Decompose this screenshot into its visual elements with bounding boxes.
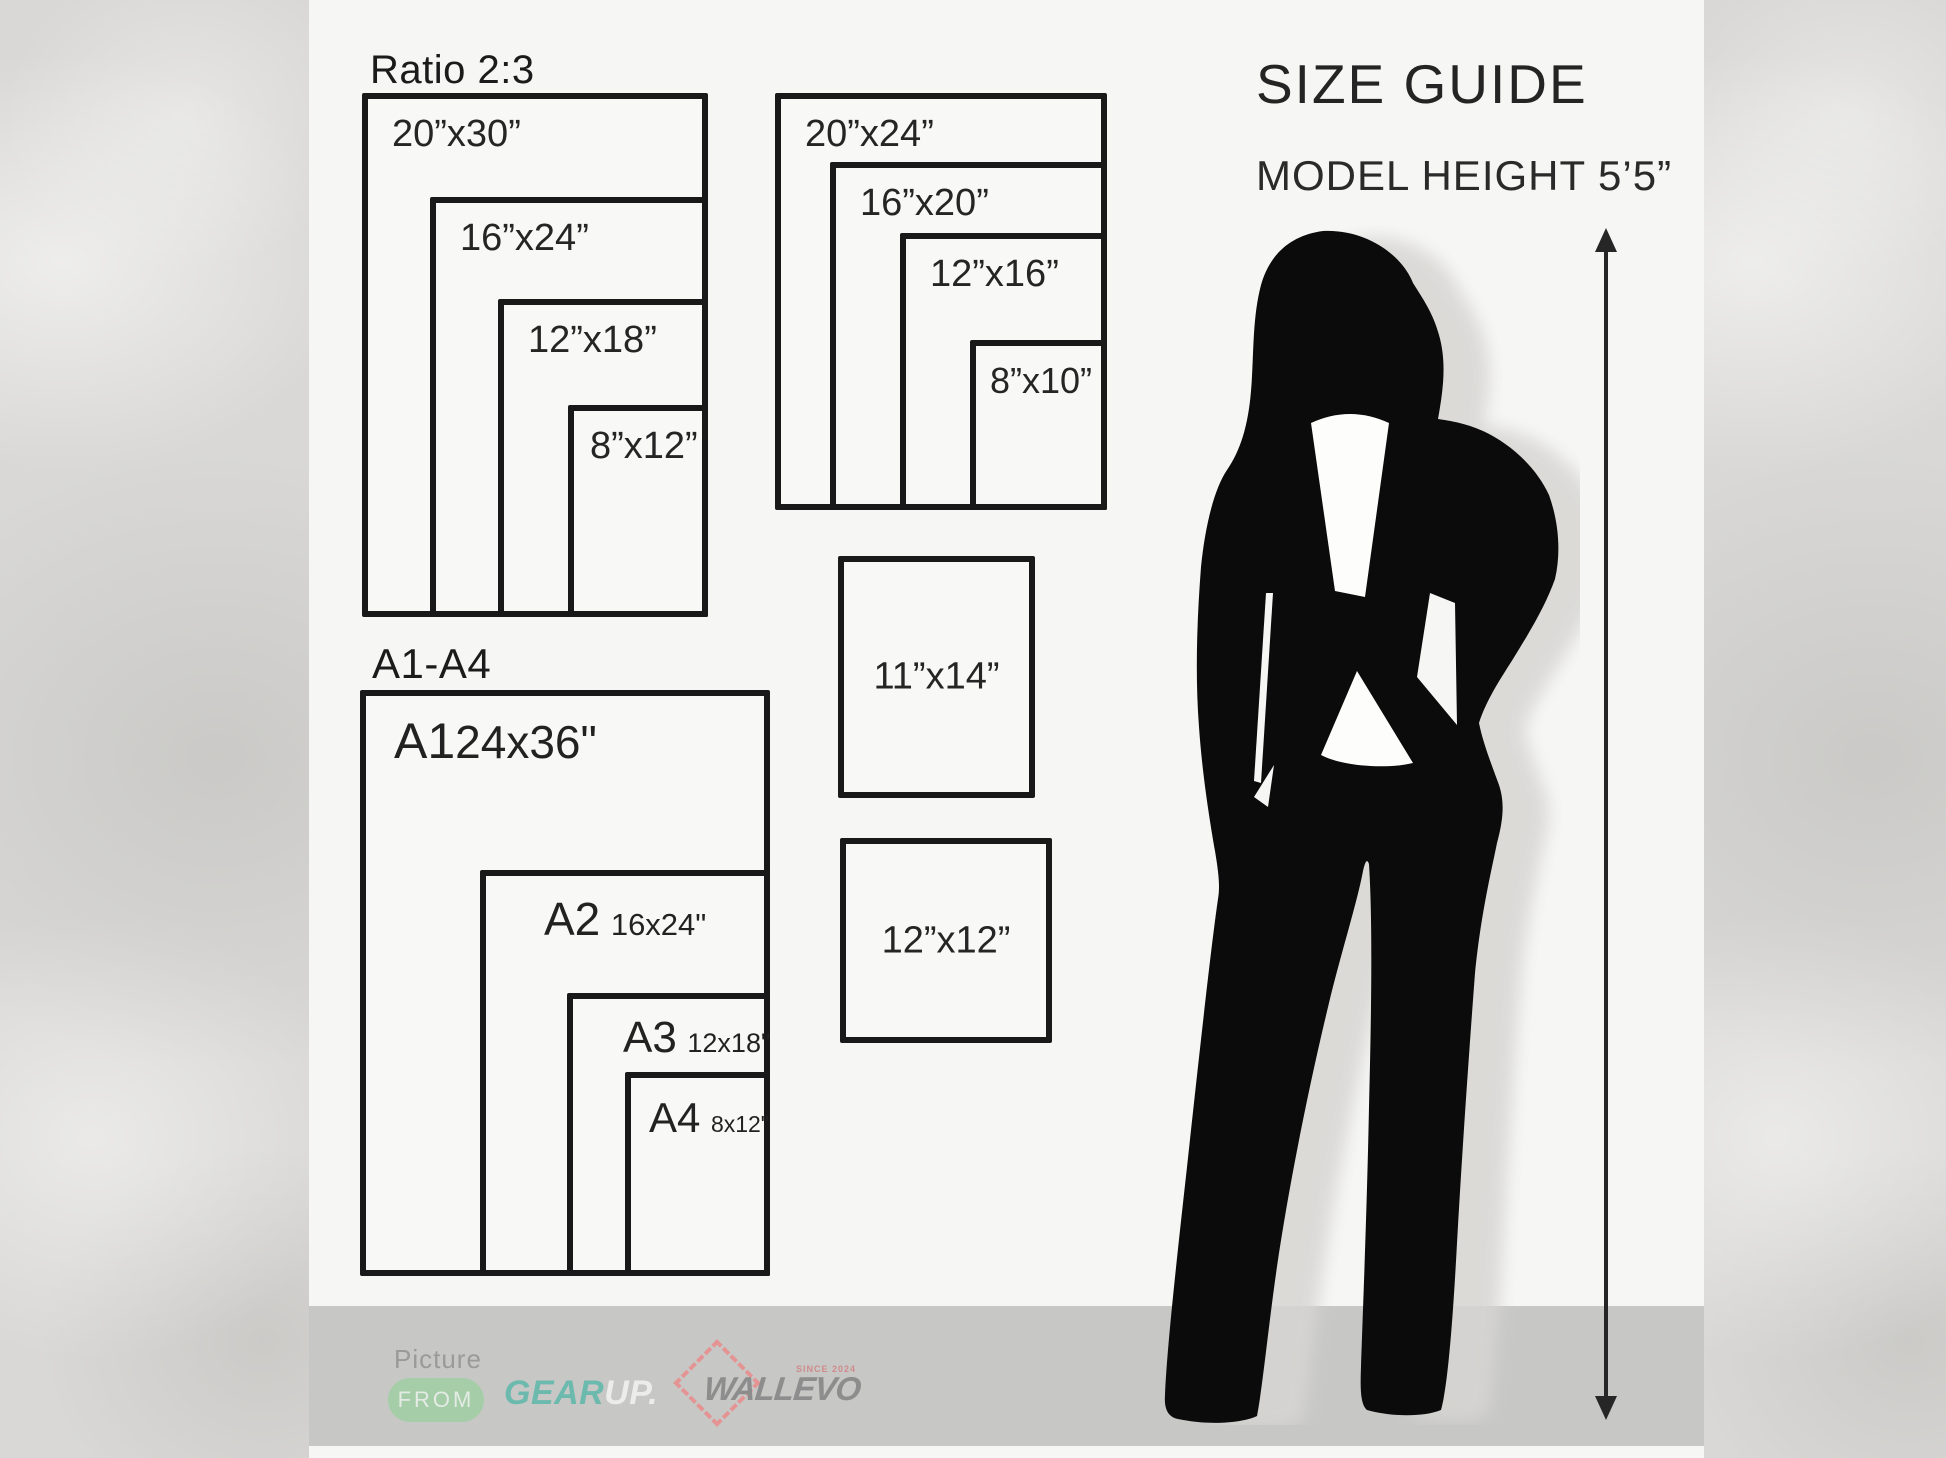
size-label: 16”x24”	[460, 217, 589, 260]
gearup-logo: GEARUP.	[504, 1374, 658, 1413]
a-size-code: A2	[544, 893, 600, 945]
size-guide-poster: Ratio 2:3 20”x30” 16”x24” 12”x18” 8”x12”…	[0, 0, 1946, 1458]
a-size-dim: 12x18"	[687, 1028, 770, 1058]
model-height-label: MODEL HEIGHT 5’5”	[1256, 152, 1672, 200]
arrow-down-icon	[1595, 1396, 1617, 1420]
height-arrow-shaft	[1604, 242, 1608, 1406]
size-box-a4: A4 8x12"	[625, 1072, 770, 1276]
picture-label: Picture	[394, 1344, 482, 1375]
a-size-code: A1	[394, 713, 455, 769]
size-label: 12”x18”	[528, 319, 657, 362]
size-label: 20”x30”	[392, 113, 521, 156]
page-title: SIZE GUIDE	[1256, 52, 1588, 116]
gearup-logo-up: UP.	[604, 1374, 658, 1412]
size-box-8x12: 8”x12”	[568, 405, 708, 617]
size-box-11x14: 11”x14”	[838, 556, 1035, 798]
height-arrow	[1590, 228, 1622, 1420]
a-size-dim: 24x36"	[455, 716, 597, 768]
background-texture-left	[0, 0, 309, 1458]
a-size-code: A3	[623, 1013, 677, 1062]
size-label: 20”x24”	[805, 113, 934, 156]
wallevo-logo: WALLEVO	[702, 1370, 862, 1408]
size-box-12x12: 12”x12”	[840, 838, 1052, 1043]
size-label: 11”x14”	[873, 656, 999, 699]
from-label: FROM	[398, 1387, 475, 1413]
background-texture-right	[1704, 0, 1946, 1458]
size-label: 8”x10”	[990, 360, 1092, 402]
size-label: 12”x12”	[882, 919, 1011, 962]
a-size-code: A4	[649, 1094, 700, 1141]
ratio-group-title: Ratio 2:3	[370, 48, 535, 93]
size-box-8x10: 8”x10”	[970, 340, 1107, 510]
aseries-group-title: A1-A4	[372, 640, 491, 688]
size-label: 16”x20”	[860, 182, 989, 225]
model-silhouette	[1160, 225, 1580, 1425]
size-label: 8”x12”	[590, 425, 698, 468]
a-size-dim: 16x24"	[611, 907, 706, 942]
gearup-logo-gear: GEAR	[504, 1374, 604, 1412]
from-pill: FROM	[388, 1378, 484, 1422]
arrow-up-icon	[1595, 228, 1617, 252]
a-size-dim: 8x12"	[711, 1111, 769, 1137]
size-label: 12”x16”	[930, 253, 1059, 296]
